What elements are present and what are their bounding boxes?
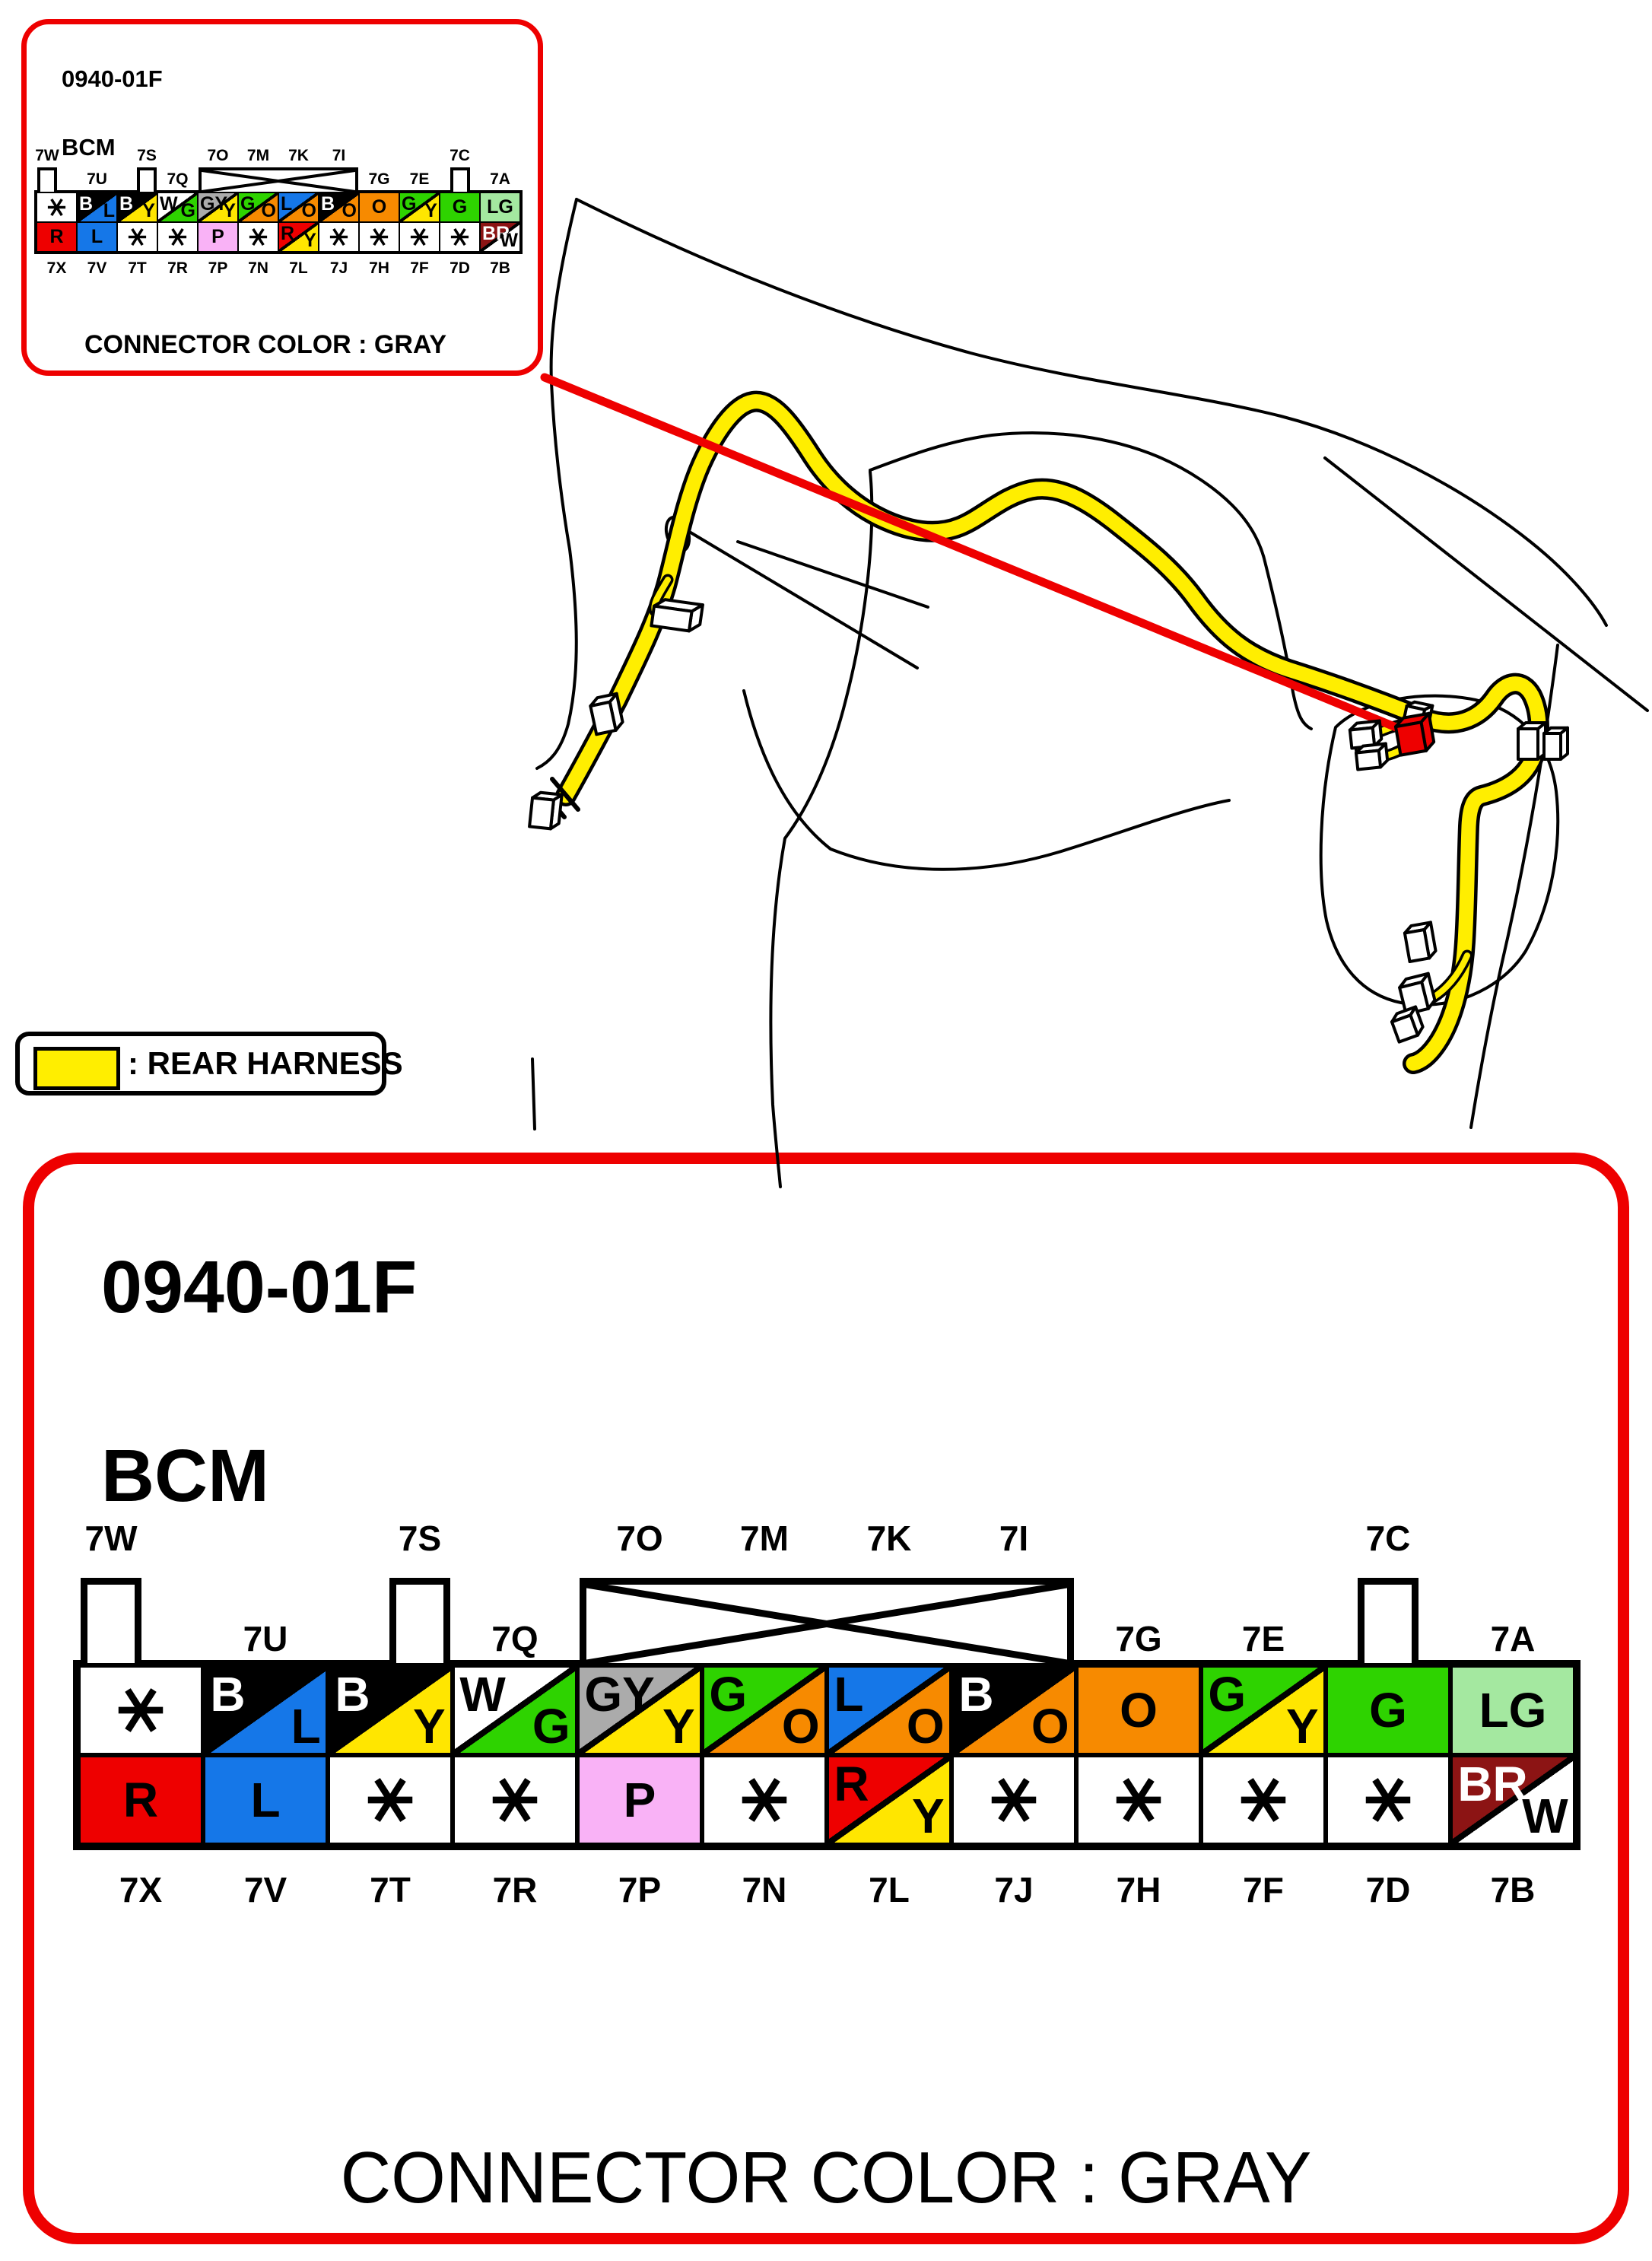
pin-cell-W-G: WG xyxy=(158,193,197,221)
pin-cell-L: L xyxy=(205,1757,326,1843)
pin-label-7P: 7P xyxy=(208,259,228,278)
pin-label-7O: 7O xyxy=(616,1518,662,1558)
pin-cell-unused xyxy=(360,223,399,251)
pin-label-7B: 7B xyxy=(490,259,510,278)
windshield-edge-line xyxy=(1325,458,1647,711)
pin-label-7P: 7P xyxy=(618,1870,661,1910)
keying-tab-7S xyxy=(137,167,157,192)
pin-cell-G-Y: GY xyxy=(1203,1668,1323,1753)
pin-label-7E: 7E xyxy=(410,170,430,189)
main-connector-diagram: 7W7S7C7O7M7K7I7U7Q7G7E7ABLBYWGGYYGOLOBOO… xyxy=(73,1518,1581,1910)
pin-cell-GY-Y: GYY xyxy=(580,1668,700,1753)
pin-cell-unused xyxy=(1079,1757,1199,1843)
center-stack-left-outline xyxy=(770,472,872,1187)
pin-label-7A: 7A xyxy=(1491,1619,1536,1658)
pin-cell-GY-Y: GYY xyxy=(199,193,237,221)
pin-label-7C: 7C xyxy=(450,147,470,165)
pin-cell-unused xyxy=(400,223,439,251)
legend-box: : REAR HARNESS xyxy=(15,1032,386,1096)
pin-label-7W: 7W xyxy=(85,1518,138,1558)
pin-cell-unused xyxy=(118,223,157,251)
pin-cell-unused xyxy=(1203,1757,1323,1843)
dashboard-illustration xyxy=(525,183,1652,1194)
pin-cell-unused xyxy=(330,1757,450,1843)
pin-cell-P: P xyxy=(580,1757,700,1843)
pin-label-7L: 7L xyxy=(869,1870,910,1910)
keying-tab-7C xyxy=(450,167,470,192)
pin-label-7I: 7I xyxy=(332,147,346,165)
pin-label-7M: 7M xyxy=(740,1518,789,1558)
pin-cell-unused xyxy=(81,1668,201,1753)
pin-cell-G-O: GO xyxy=(704,1668,824,1753)
pin-cell-BR-W: BRW xyxy=(1453,1757,1573,1843)
pin-label-7R: 7R xyxy=(493,1870,538,1910)
pin-label-7W: 7W xyxy=(35,147,59,165)
pin-cell-O: O xyxy=(1079,1668,1199,1753)
pin-cell-G: G xyxy=(440,193,479,221)
pin-cell-LG: LG xyxy=(1453,1668,1573,1753)
pin-cell-G-Y: GY xyxy=(400,193,439,221)
pin-cell-unused xyxy=(704,1757,824,1843)
keying-tab-7W xyxy=(81,1578,141,1663)
pin-label-7K: 7K xyxy=(867,1518,912,1558)
steering-column-line-lower xyxy=(738,542,928,607)
pin-cell-R-Y: RY xyxy=(829,1757,949,1843)
pin-label-7D: 7D xyxy=(450,259,470,278)
pin-label-7G: 7G xyxy=(1115,1619,1161,1658)
pin-cell-unused xyxy=(455,1757,575,1843)
pin-cell-LG: LG xyxy=(481,193,519,221)
pin-label-7M: 7M xyxy=(247,147,269,165)
pin-cell-unused xyxy=(440,223,479,251)
lower-console-curve xyxy=(744,691,1229,870)
highlighted-connector xyxy=(1394,714,1435,755)
pin-cell-B-Y: BY xyxy=(118,193,157,221)
pin-cell-unused xyxy=(239,223,278,251)
rear-harness xyxy=(549,402,1539,1064)
harness-connector-boxes xyxy=(529,598,1568,1041)
pin-label-7N: 7N xyxy=(248,259,268,278)
pin-label-7O: 7O xyxy=(207,147,228,165)
keying-tab-7W xyxy=(37,167,57,192)
pin-label-7X: 7X xyxy=(47,259,67,278)
pin-cell-unused xyxy=(37,193,76,221)
pin-cell-G: G xyxy=(1328,1668,1448,1753)
main-module-name: BCM xyxy=(101,1434,269,1517)
pin-cell-unused xyxy=(954,1757,1074,1843)
connector-box xyxy=(1404,922,1437,962)
main-connector-title: 0940-01F BCM xyxy=(101,1240,417,1523)
pin-cell-BR-W: BRW xyxy=(481,223,519,251)
pin-label-7V: 7V xyxy=(244,1870,287,1910)
pin-label-7S: 7S xyxy=(137,147,157,165)
connector-box xyxy=(1518,723,1546,759)
legend-label: : REAR HARNESS xyxy=(128,1045,403,1082)
pin-cell-L: L xyxy=(78,223,116,251)
pin-label-7X: 7X xyxy=(119,1870,162,1910)
connector-box xyxy=(1544,728,1568,759)
steering-column-line-upper xyxy=(683,528,917,668)
pin-label-7R: 7R xyxy=(167,259,188,278)
keying-tab-7C xyxy=(1358,1578,1418,1663)
pin-cell-unused xyxy=(1328,1757,1448,1843)
pin-cell-O: O xyxy=(360,193,399,221)
pin-label-7T: 7T xyxy=(370,1870,411,1910)
pin-label-7B: 7B xyxy=(1491,1870,1536,1910)
pin-cell-B-O: BO xyxy=(954,1668,1074,1753)
left-kick-panel-line xyxy=(532,1059,535,1129)
pin-label-7I: 7I xyxy=(999,1518,1028,1558)
pin-label-7A: 7A xyxy=(490,170,510,189)
pin-cell-R: R xyxy=(81,1757,201,1843)
connector-box xyxy=(589,694,624,734)
blocked-pins-box xyxy=(580,1578,1074,1663)
pin-label-7L: 7L xyxy=(289,259,308,278)
rear-harness-swatch xyxy=(33,1047,120,1090)
pin-cell-W-G: WG xyxy=(455,1668,575,1753)
pin-cell-R: R xyxy=(37,223,76,251)
pin-cell-G-O: GO xyxy=(239,193,278,221)
pin-cell-L-O: LO xyxy=(279,193,318,221)
pin-cell-B-Y: BY xyxy=(330,1668,450,1753)
pin-label-7D: 7D xyxy=(1366,1870,1411,1910)
pin-label-7H: 7H xyxy=(369,259,389,278)
pin-label-7H: 7H xyxy=(1117,1870,1161,1910)
page: : REAR HARNESS 0940-01F BCM CONNECTOR CO… xyxy=(0,0,1652,2261)
inset-connector-diagram: 7W7S7C7O7M7K7I7U7Q7G7E7ABLBYWGGYYGOLOBOO… xyxy=(34,147,523,278)
connector-box xyxy=(651,598,702,632)
pin-label-7F: 7F xyxy=(1243,1870,1284,1910)
pin-label-7K: 7K xyxy=(288,147,309,165)
cluster-hood-outline xyxy=(870,433,1311,729)
keying-tab-7S xyxy=(389,1578,450,1663)
main-connector-color-note: CONNECTOR COLOR : GRAY xyxy=(341,2136,1312,2220)
pin-label-7N: 7N xyxy=(742,1870,787,1910)
inset-connector-color-note: CONNECTOR COLOR : GRAY xyxy=(84,330,446,360)
pin-label-7G: 7G xyxy=(368,170,389,189)
pin-label-7E: 7E xyxy=(1242,1619,1285,1658)
pin-cell-L-O: LO xyxy=(829,1668,949,1753)
pin-cell-unused xyxy=(158,223,197,251)
connector-box xyxy=(529,792,562,830)
pin-cell-P: P xyxy=(199,223,237,251)
pin-label-7J: 7J xyxy=(330,259,348,278)
pin-label-7J: 7J xyxy=(994,1870,1033,1910)
pin-cell-B-O: BO xyxy=(319,193,358,221)
harness-branches xyxy=(654,580,1467,1024)
pin-cell-B-L: BL xyxy=(78,193,116,221)
pin-label-7T: 7T xyxy=(128,259,147,278)
pin-label-7U: 7U xyxy=(87,170,107,189)
pin-label-7Q: 7Q xyxy=(167,170,188,189)
connector-box xyxy=(1355,743,1388,769)
pin-label-7C: 7C xyxy=(1366,1518,1411,1558)
pin-label-7V: 7V xyxy=(87,259,107,278)
pin-label-7Q: 7Q xyxy=(491,1619,538,1658)
pin-label-7F: 7F xyxy=(410,259,429,278)
inset-connector-id: 0940-01F xyxy=(62,65,163,92)
pin-label-7S: 7S xyxy=(399,1518,441,1558)
blocked-pins-box xyxy=(199,167,358,192)
pin-label-7U: 7U xyxy=(243,1619,288,1658)
pin-cell-B-L: BL xyxy=(205,1668,326,1753)
main-connector-id: 0940-01F xyxy=(101,1245,417,1328)
pin-cell-unused xyxy=(319,223,358,251)
pin-cell-R-Y: RY xyxy=(279,223,318,251)
